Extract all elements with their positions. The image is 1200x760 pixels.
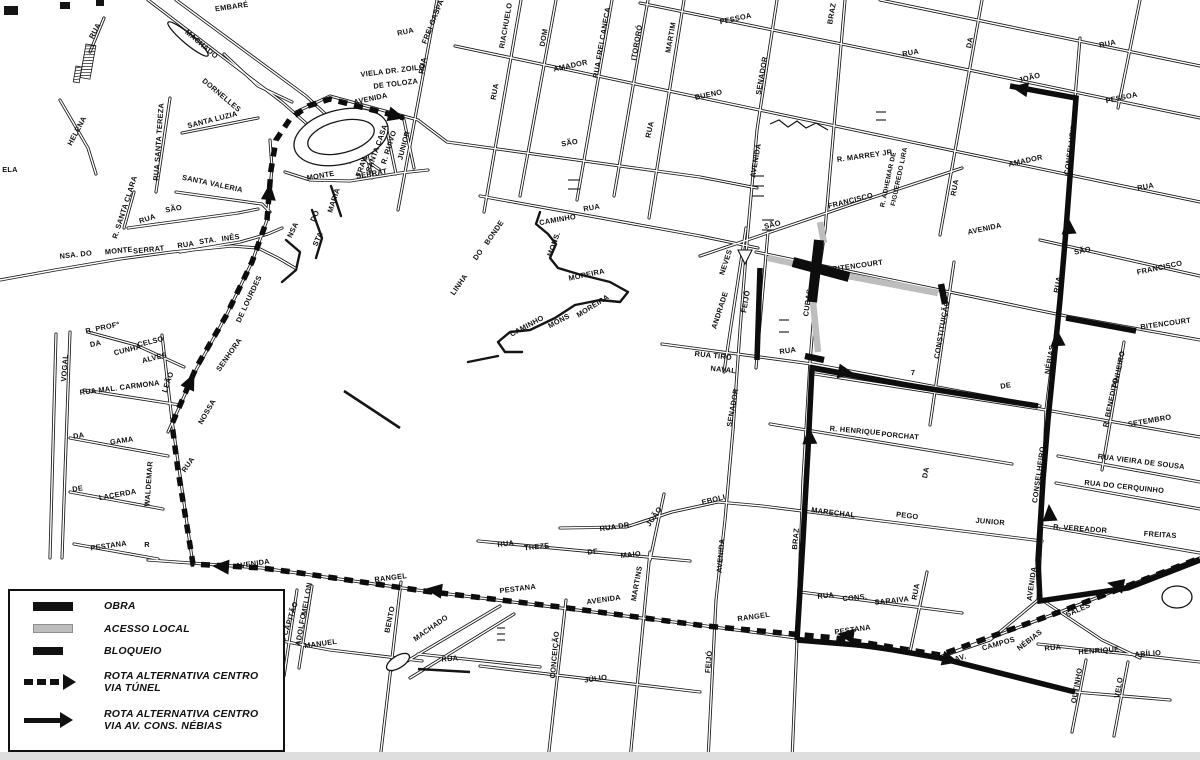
- street-fill: [548, 600, 566, 760]
- street-label: DA: [920, 466, 931, 479]
- solid-route-arrow-swatch: [24, 712, 73, 728]
- street-label: FEIJÓ: [739, 290, 752, 314]
- street-label: WALDEMAR: [142, 460, 154, 506]
- street-label: SENADOR: [725, 387, 741, 427]
- street-label: SALES: [1064, 600, 1091, 619]
- street-label: EBOLI: [701, 492, 726, 507]
- street-label: LINHA: [448, 272, 469, 297]
- route-solid-nebias: [1066, 318, 1136, 331]
- roundabout: [1162, 586, 1192, 608]
- street-label: CUNHA: [113, 342, 143, 358]
- terrain-line: [344, 391, 400, 428]
- route-arrowhead: [1060, 216, 1076, 234]
- legend-label: VIA AV. CONS. NÉBIAS: [104, 720, 258, 733]
- street-label: RUA: [902, 47, 920, 59]
- street-label: RUA: [441, 653, 459, 663]
- street-label: PEGO: [896, 510, 919, 522]
- street-fill: [50, 334, 56, 558]
- street-label: AVENIDA: [353, 90, 389, 106]
- street-label: PESTANA: [499, 582, 537, 595]
- street-fill: [708, 0, 777, 760]
- street-label: BRAZ: [825, 2, 838, 25]
- street-label: BRAZ: [790, 527, 801, 549]
- map-fragment: [60, 2, 70, 9]
- street-label: DE TOLOZA: [373, 76, 419, 90]
- street-label: RUA: [497, 538, 515, 549]
- street-label: GAMA: [109, 434, 134, 446]
- street-label: ELA: [2, 165, 18, 174]
- acesso-local-segment: [848, 276, 938, 293]
- street-label: R. PROFª: [85, 320, 121, 336]
- street-label: DA: [72, 430, 85, 441]
- street-label: NOSSA: [196, 397, 218, 426]
- street-casing: [940, 38, 1080, 657]
- acesso-local-segment: [820, 222, 824, 243]
- street-fill: [880, 0, 1200, 66]
- legend-label: ROTA ALTERNATIVA CENTRO: [104, 670, 258, 683]
- street-label: RIACHUELO: [497, 2, 514, 49]
- street-label: FRANCISCO: [827, 191, 874, 211]
- street-label: JUNIOR: [975, 516, 1006, 528]
- construction-detour-map: RUAMACHADODORNELLESEMBARÉSANTA LUZIARUA …: [0, 0, 1200, 760]
- street-label: MARTINS: [629, 565, 644, 601]
- street-label: 7: [911, 368, 915, 377]
- bloqueio-bar: [805, 356, 824, 360]
- acesso-local-segment: [813, 302, 818, 352]
- street-label: STA.: [198, 235, 216, 246]
- street-label: NSA. DO: [59, 248, 92, 260]
- street-label: RUA: [179, 455, 196, 474]
- street-fill: [520, 0, 556, 196]
- street-label: FREITAS: [1143, 529, 1176, 540]
- hatch-area: [80, 44, 96, 79]
- street-label: DE: [999, 380, 1011, 391]
- street-label: DE LOURDES: [234, 274, 264, 324]
- legend-item-obra: OBRA: [24, 600, 283, 613]
- street-label: RUA: [417, 56, 429, 74]
- legend-label: ROTA ALTERNATIVA CENTRO: [104, 708, 258, 721]
- legend-label: VIA TÚNEL: [104, 682, 258, 695]
- street-label: RUA: [643, 120, 655, 139]
- street-label: DO: [308, 209, 321, 223]
- street-fill: [940, 0, 982, 235]
- dashed-route-arrow-swatch: [24, 674, 76, 690]
- street-label: BITENCOURT: [832, 257, 884, 273]
- street-label: RUA: [910, 582, 922, 600]
- street-label: ANDRADE: [709, 290, 730, 330]
- hatch-area: [73, 66, 82, 83]
- acesso-local-swatch: [33, 624, 73, 633]
- street-label: RUA: [949, 178, 961, 196]
- street-label: RUA DR.: [599, 520, 632, 533]
- bloqueio-swatch: [33, 647, 63, 655]
- street-label: CONSELHEIRO: [1062, 118, 1079, 176]
- street-label: RANGEL: [737, 610, 771, 623]
- legend-label: BLOQUEIO: [104, 645, 162, 657]
- map-fragment: [96, 0, 104, 6]
- street-label: RUA VIEIRA DE SOUSA: [1097, 452, 1185, 472]
- legend-label: ACESSO LOCAL: [104, 623, 190, 635]
- street-label: DORNELLES: [200, 76, 242, 114]
- street-label: ABÍLIO: [1134, 648, 1161, 659]
- route-solid-nebias: [797, 640, 1075, 692]
- street-label: SÃO: [165, 203, 183, 215]
- street-label: RUA: [779, 345, 797, 356]
- street-label: RUA: [489, 82, 501, 100]
- street-label: SENADOR: [754, 55, 770, 95]
- street-label: HENRIQUE: [1078, 645, 1120, 657]
- street-label: PINHEIRO: [1110, 350, 1127, 389]
- street-label: DA: [89, 338, 102, 349]
- map-fragment: [4, 6, 18, 15]
- street-label: EMBARÉ: [214, 0, 248, 13]
- street-label: NÉBIAS: [1015, 627, 1044, 652]
- street-fill: [700, 168, 962, 256]
- street-label: BITENCOURT: [1140, 315, 1192, 331]
- terrain-line: [418, 669, 470, 672]
- street-label: CONSTITUIÇÃO: [932, 300, 951, 360]
- street-label: NAVAL: [710, 364, 737, 376]
- scan-edge-band: [0, 752, 1200, 760]
- street-label: DE: [587, 546, 599, 556]
- street-label: MAIO: [620, 549, 641, 560]
- legend-item-rota-nebias: ROTA ALTERNATIVA CENTRO VIA AV. CONS. NÉ…: [24, 708, 283, 733]
- street-label: NSA: [285, 220, 300, 239]
- street-label: RUA FREI CANECA: [591, 6, 612, 79]
- map-legend: OBRA ACESSO LOCAL BLOQUEIO ROTA ALTERNAT…: [8, 589, 285, 752]
- street-label: R. SANTA CLARA: [110, 174, 139, 239]
- street-label: DE: [72, 483, 84, 493]
- legend-item-bloqueio: BLOQUEIO: [24, 645, 283, 658]
- street-label: SENHORA: [214, 336, 244, 373]
- street-fill: [940, 38, 1080, 657]
- street-label: AVENIDA: [967, 220, 1003, 236]
- street-label: R: [144, 540, 150, 549]
- street-label: RUA: [1044, 642, 1062, 652]
- route-dashed-tunel: [172, 99, 1195, 655]
- route-arrowhead: [211, 558, 229, 574]
- street-label: CAMINHO: [539, 212, 577, 227]
- street-label: MARECHAL: [811, 505, 856, 519]
- street-label: RUA: [817, 590, 835, 601]
- street-label: RUA DO CERQUINHO: [1084, 478, 1165, 495]
- route-solid-nebias: [1010, 86, 1200, 601]
- street-label: BONDE: [482, 219, 505, 247]
- street-label: FRANCISCO: [1136, 258, 1183, 276]
- legend-label: OBRA: [104, 600, 136, 612]
- street-label: MONTE: [104, 245, 133, 257]
- street-label: DO: [471, 247, 485, 262]
- street-label: FREI GASPAR: [420, 0, 448, 45]
- street-casing: [468, 356, 498, 362]
- street-label: RANGEL: [374, 571, 408, 584]
- street-label: RUA: [583, 202, 601, 214]
- street-label: LEÃO: [160, 370, 176, 393]
- roundabout: [165, 18, 211, 59]
- street-label: MOREIRA: [575, 292, 611, 319]
- street-label: AVENIDA: [1025, 566, 1039, 602]
- route-arrowhead: [261, 182, 278, 200]
- legend-item-rota-tunel: ROTA ALTERNATIVA CENTRO VIA TÚNEL: [24, 670, 283, 695]
- route-solid-nebias: [757, 268, 760, 360]
- legend-item-acesso-local: ACESSO LOCAL: [24, 623, 283, 636]
- street-label: NEVES: [717, 248, 734, 276]
- street-label: SETEMBRO: [1127, 412, 1172, 428]
- street-label: R. VEREADOR: [1053, 522, 1108, 535]
- street-label: JÚLIO: [584, 672, 608, 684]
- obra-swatch: [33, 602, 73, 611]
- street-label: SANTA VALERIA: [181, 173, 244, 195]
- street-label: RUA: [396, 25, 415, 37]
- street-label: SÃO: [1073, 244, 1091, 256]
- route-arrowhead: [1049, 328, 1065, 346]
- street-label: CAMPOS: [981, 635, 1016, 653]
- street-label: SÃO: [561, 137, 579, 149]
- street-label: PORCHAT: [881, 429, 920, 441]
- street-label: AVENIDA: [715, 538, 727, 574]
- street-label: AVENIDA: [586, 593, 622, 607]
- street-label: MELLON: [299, 582, 314, 616]
- street-casing: [708, 0, 777, 760]
- street-label: AVENIDA: [748, 142, 763, 178]
- street-label: R. MARREY JR.: [836, 147, 895, 164]
- street-label: TREZE: [524, 541, 550, 553]
